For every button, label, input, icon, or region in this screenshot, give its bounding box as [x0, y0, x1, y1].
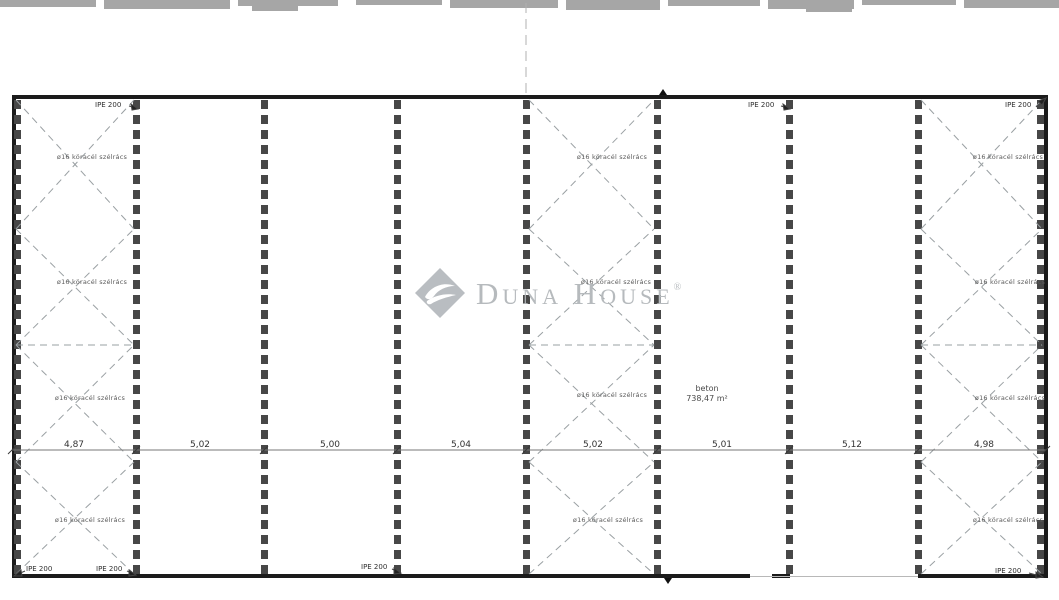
dimension-value: 5,01 — [712, 440, 732, 450]
bracing-label: ø16 köracél szélrács — [55, 516, 125, 524]
bracing-label: ø16 köracél szélrács — [975, 394, 1045, 402]
column-strip — [654, 100, 661, 574]
beam-label: IPE 200 — [26, 565, 52, 573]
scan-artifact — [356, 0, 442, 5]
scan-artifact — [566, 0, 660, 10]
duna-house-logo-icon — [413, 266, 467, 320]
scan-artifact — [964, 0, 1059, 8]
wall-bottom-left-segment — [12, 574, 750, 578]
bracing-label: ø16 köracél szélrács — [577, 391, 647, 399]
scan-artifact — [252, 0, 298, 11]
watermark: Duna House® — [413, 266, 681, 320]
bracing-label: ø16 köracél szélrács — [577, 153, 647, 161]
scan-artifact — [806, 0, 852, 12]
scan-artifact — [668, 0, 760, 6]
dimension-value: 4,87 — [64, 440, 84, 450]
beam-label: IPE 200 — [748, 101, 774, 109]
bracing-label: ø16 köracél szélrács — [973, 516, 1043, 524]
column-strip — [1037, 100, 1044, 574]
wind-bracing-bay-left — [16, 100, 134, 574]
wall-top — [12, 95, 1048, 99]
leader-lines — [14, 98, 1046, 578]
wind-bracing-bay-middle — [529, 100, 654, 574]
floor-area-material: beton — [664, 384, 750, 394]
beam-label: IPE 200 — [995, 567, 1021, 575]
dimension-value: 5,02 — [583, 440, 603, 450]
wall-right — [1044, 95, 1048, 578]
registered-trademark-symbol: ® — [674, 282, 682, 293]
bracing-label: ø16 köracél szélrács — [573, 516, 643, 524]
dimension-value: 5,12 — [842, 440, 862, 450]
column-strip — [261, 100, 268, 574]
column-strip — [915, 100, 922, 574]
floor-plan-canvas: IPE 200 IPE 200 IPE 200 IPE 200 IPE 200 … — [0, 0, 1059, 600]
dimension-value: 4,98 — [974, 440, 994, 450]
column-strip — [133, 100, 140, 574]
dimension-value: 5,02 — [190, 440, 210, 450]
watermark-brand-name: Duna House — [476, 276, 674, 311]
beam-label: IPE 200 — [95, 101, 121, 109]
bracing-label: ø16 köracél szélrács — [975, 278, 1045, 286]
scan-artifact — [450, 0, 558, 8]
bracing-label: ø16 köracél szélrács — [55, 394, 125, 402]
column-strip — [523, 100, 530, 574]
floor-area-note: beton 738,47 m² — [664, 384, 750, 404]
bottom-opening-line — [750, 576, 918, 577]
scan-artifact — [0, 0, 96, 7]
axis-markers — [659, 89, 672, 584]
wind-bracing-bay-right — [921, 100, 1042, 574]
beam-label: IPE 200 — [96, 565, 122, 573]
column-strip — [786, 100, 793, 574]
watermark-wordmark: Duna House® — [476, 278, 681, 309]
bracing-label: ø16 köracél szélrács — [57, 278, 127, 286]
bracing-label: ø16 köracél szélrács — [57, 153, 127, 161]
scan-artifact — [104, 0, 230, 9]
bracing-label: ø16 köracél szélrács — [973, 153, 1043, 161]
column-strip — [14, 100, 21, 574]
dimension-value: 5,00 — [320, 440, 340, 450]
floor-area-value: 738,47 m² — [664, 394, 750, 404]
scan-artifact — [862, 0, 956, 5]
wall-bottom-right-segment — [918, 574, 1048, 578]
beam-label: IPE 200 — [1005, 101, 1031, 109]
dimension-value: 5,04 — [451, 440, 471, 450]
column-strip — [394, 100, 401, 574]
beam-label: IPE 200 — [361, 563, 387, 571]
